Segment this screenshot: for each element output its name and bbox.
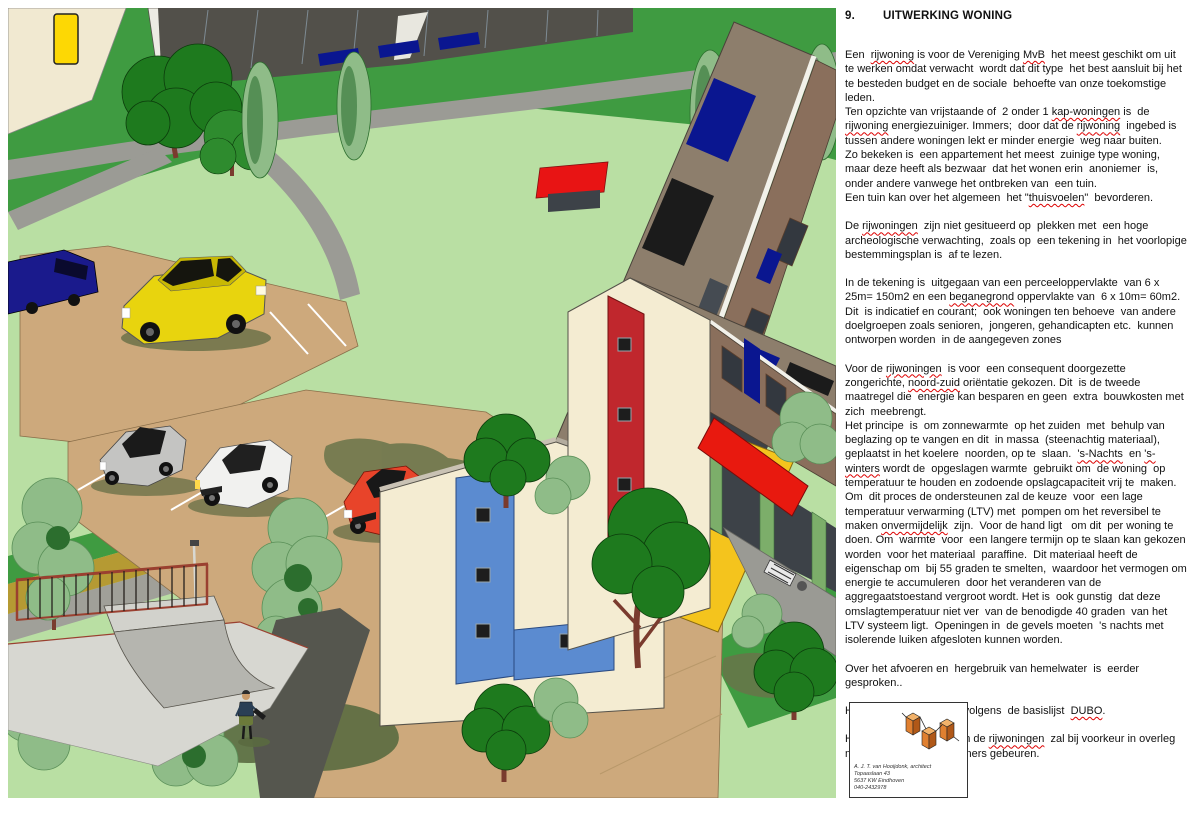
- paragraph-3: In de tekening is uitgegaan van een perc…: [845, 276, 1187, 347]
- architect-logo-box: A. J. T. van Hooijdonk, architect Topaas…: [849, 702, 968, 798]
- document-page: 9. UITWERKING WONING Een rijwoning is vo…: [0, 0, 1196, 813]
- cube-1: [906, 713, 920, 735]
- section-number: 9.: [845, 10, 883, 22]
- architect-phone: 040-2432978: [854, 785, 931, 792]
- architect-city: 5637 KW Eindhoven: [854, 778, 931, 785]
- cube-2: [922, 727, 936, 749]
- architect-info: A. J. T. van Hooijdonk, architect Topaas…: [854, 764, 931, 792]
- paragraph-5: Over het afvoeren en hergebruik van heme…: [845, 662, 1187, 691]
- rendering-svg: [8, 8, 836, 798]
- cube-3: [940, 719, 954, 741]
- paragraph-4: Voor de rijwoningen is voor een conseque…: [845, 362, 1187, 648]
- section-heading: 9. UITWERKING WONING: [845, 10, 1187, 22]
- architect-street: Topaaslaan 43: [854, 771, 931, 778]
- yellow-road-sign: [54, 14, 78, 64]
- paragraph-1: Een rijwoning is voor de Vereniging MvB …: [845, 48, 1187, 205]
- section-title: UITWERKING WONING: [883, 10, 1012, 22]
- text-column: 9. UITWERKING WONING Een rijwoning is vo…: [845, 10, 1187, 775]
- paragraphs: Een rijwoning is voor de Vereniging MvB …: [845, 48, 1187, 761]
- architectural-rendering: [8, 8, 836, 798]
- architect-name: A. J. T. van Hooijdonk, architect: [854, 764, 931, 771]
- paragraph-2: De rijwoningen zijn niet gesitueerd op p…: [845, 219, 1187, 262]
- cubes-logo-icon: [850, 703, 967, 761]
